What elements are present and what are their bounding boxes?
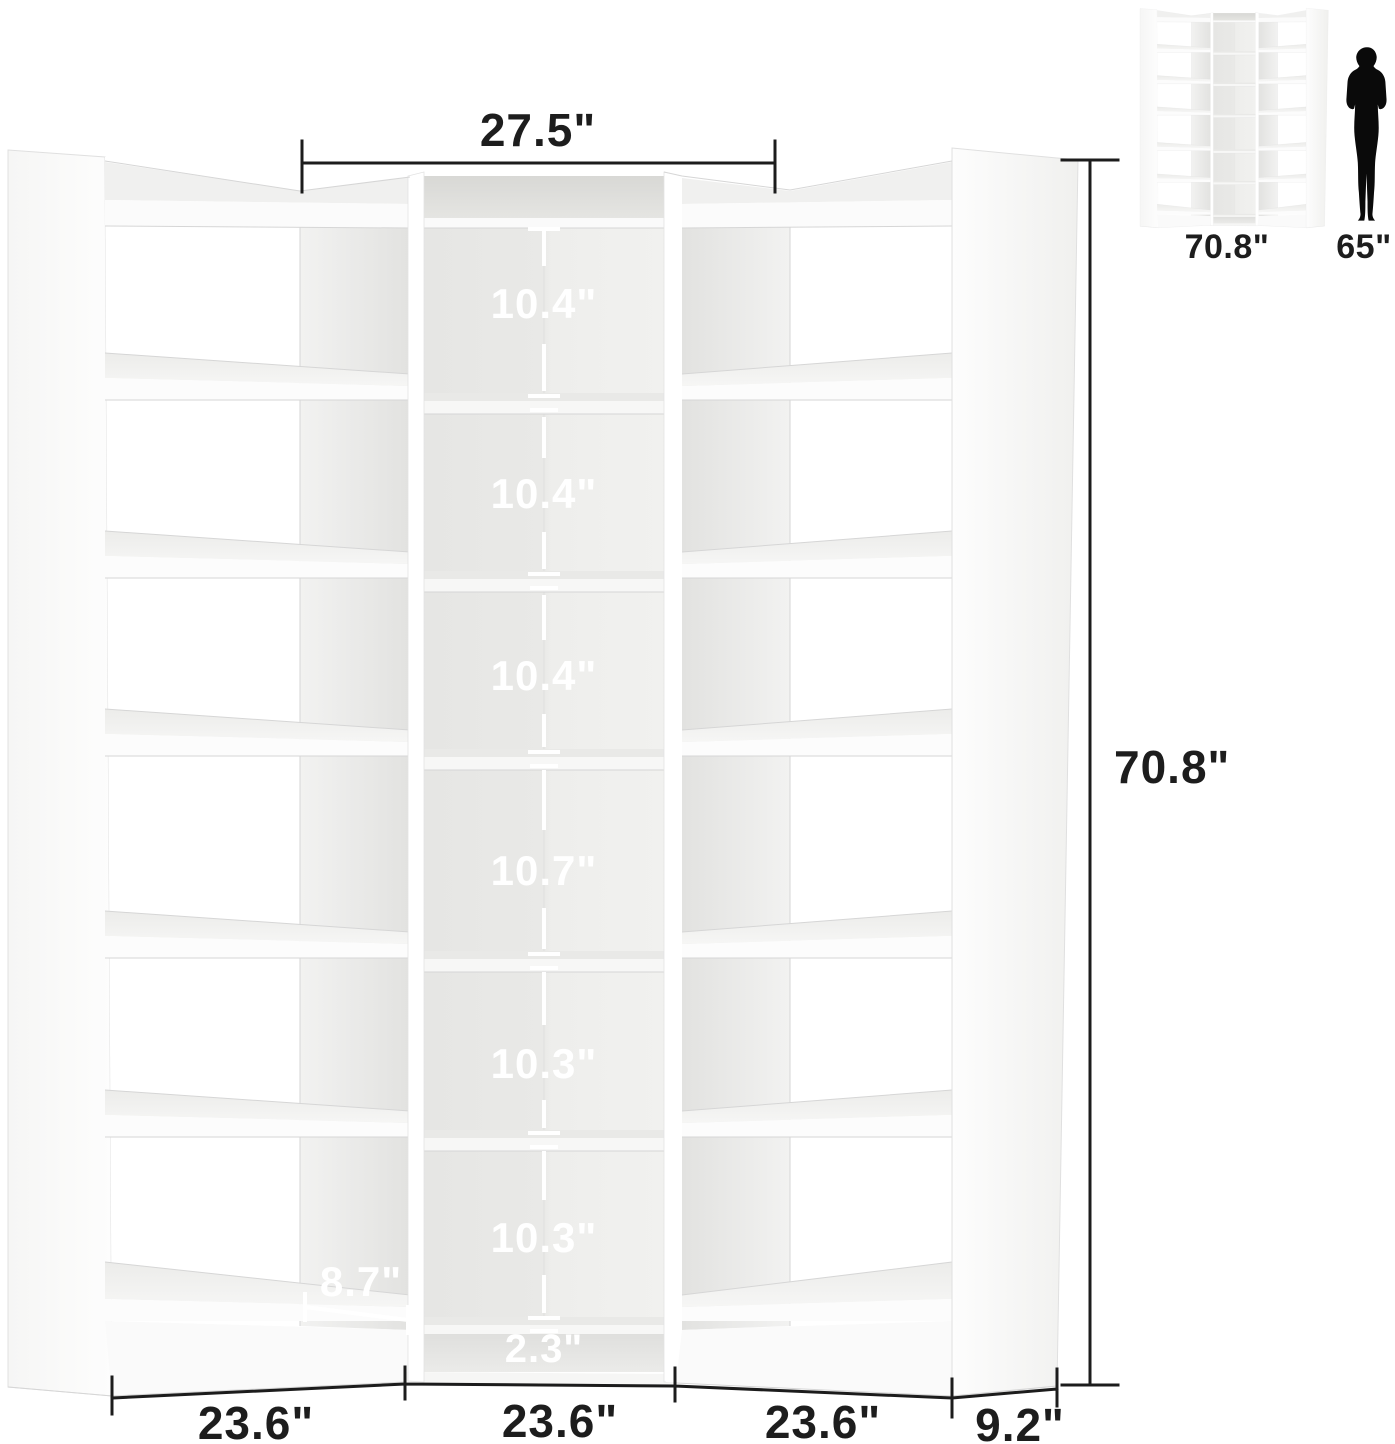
size-reference-inset: 70.8" 65": [1140, 8, 1392, 266]
left-shelf-column: [105, 157, 410, 1396]
cubby-height-label-6: 10.3": [491, 1214, 598, 1261]
left-side-panel: [8, 150, 112, 1396]
side-cubby-depth-label: 8.7": [320, 1258, 402, 1305]
right-side-panel: [952, 148, 1078, 1397]
top-width-label: 27.5": [480, 104, 596, 156]
corner-bookshelf-dimension-drawing: 27.5" 70.8" 23.6" 23.6" 23.6" 9.2" 10.4"…: [0, 0, 1395, 1444]
cubby-height-label-5: 10.3": [491, 1040, 598, 1087]
center-section-width-label: 23.6": [502, 1395, 618, 1444]
cubby-height-label-1: 10.4": [491, 280, 598, 327]
cubby-height-label-2: 10.4": [491, 470, 598, 517]
inset-unit-height-label: 70.8": [1185, 228, 1270, 266]
center-top-shelf: [408, 176, 682, 228]
left-divider-edge: [408, 172, 424, 1382]
product-dimension-diagram: 27.5" 70.8" 23.6" 23.6" 23.6" 9.2" 10.4"…: [0, 0, 1395, 1444]
inset-person-height-label: 65": [1336, 228, 1391, 266]
total-height-label: 70.8": [1114, 741, 1230, 793]
base-height-label: 2.3": [505, 1327, 584, 1371]
person-silhouette-icon: [1346, 47, 1386, 220]
side-depth-label: 9.2": [975, 1399, 1065, 1444]
cubby-height-label-4: 10.7": [491, 847, 598, 894]
center-base-edge: [405, 1372, 675, 1384]
inset-shelf-thumbnail: [1140, 8, 1328, 228]
left-section-width-label: 23.6": [198, 1397, 314, 1444]
right-shelf-column: [666, 157, 952, 1396]
right-section-width-label: 23.6": [765, 1396, 881, 1444]
cubby-height-label-3: 10.4": [491, 652, 598, 699]
height-dimension: 70.8": [1062, 160, 1230, 1385]
